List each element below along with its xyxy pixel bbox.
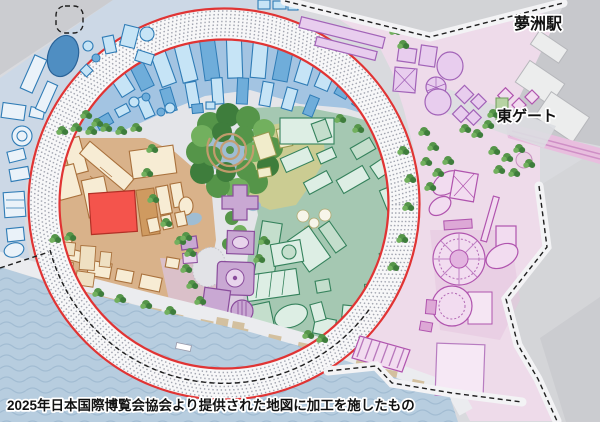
round-pavilion	[432, 286, 472, 326]
east-gate-label: 東ゲート	[497, 107, 557, 125]
map-caption: 2025年日本国際博覧会協会より提供された地図に加工を施したもの	[7, 397, 415, 413]
arena	[433, 233, 485, 285]
station-label: 夢洲駅	[514, 14, 563, 33]
map-canvas: 夢洲駅 東ゲート 2025年日本国際博覧会協会より提供された地図に加工を施したも…	[0, 0, 600, 422]
expo-site-map: 夢洲駅 東ゲート 2025年日本国際博覧会協会より提供された地図に加工を施したも…	[0, 0, 600, 422]
highlighted-red-pavilion	[89, 190, 138, 234]
